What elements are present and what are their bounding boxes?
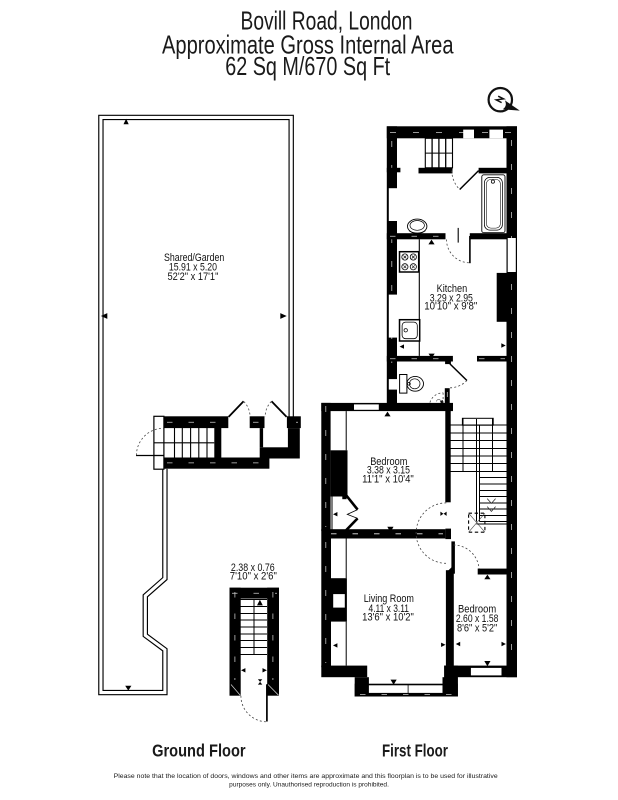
svg-text:11'1" x 10'4": 11'1" x 10'4" — [362, 473, 414, 485]
svg-text:7'10" x 2'6": 7'10" x 2'6" — [230, 571, 277, 583]
svg-text:10'10" x 9'8": 10'10" x 9'8" — [424, 300, 477, 312]
svg-text:13'6" x 10'2": 13'6" x 10'2" — [362, 612, 414, 624]
svg-text:Please note that the location: Please note that the location of doors, … — [114, 773, 499, 780]
svg-text:8'6" x 5'2": 8'6" x 5'2" — [457, 623, 497, 635]
svg-text:62 Sq M/670 Sq Ft: 62 Sq M/670 Sq Ft — [225, 51, 391, 81]
svg-text:52'2" x 17'1": 52'2" x 17'1" — [168, 271, 219, 283]
svg-text:First Floor: First Floor — [382, 741, 448, 761]
svg-text:Ground Floor: Ground Floor — [152, 741, 246, 761]
svg-text:purposes only. Unauthorised re: purposes only. Unauthorised reproduction… — [229, 782, 389, 789]
